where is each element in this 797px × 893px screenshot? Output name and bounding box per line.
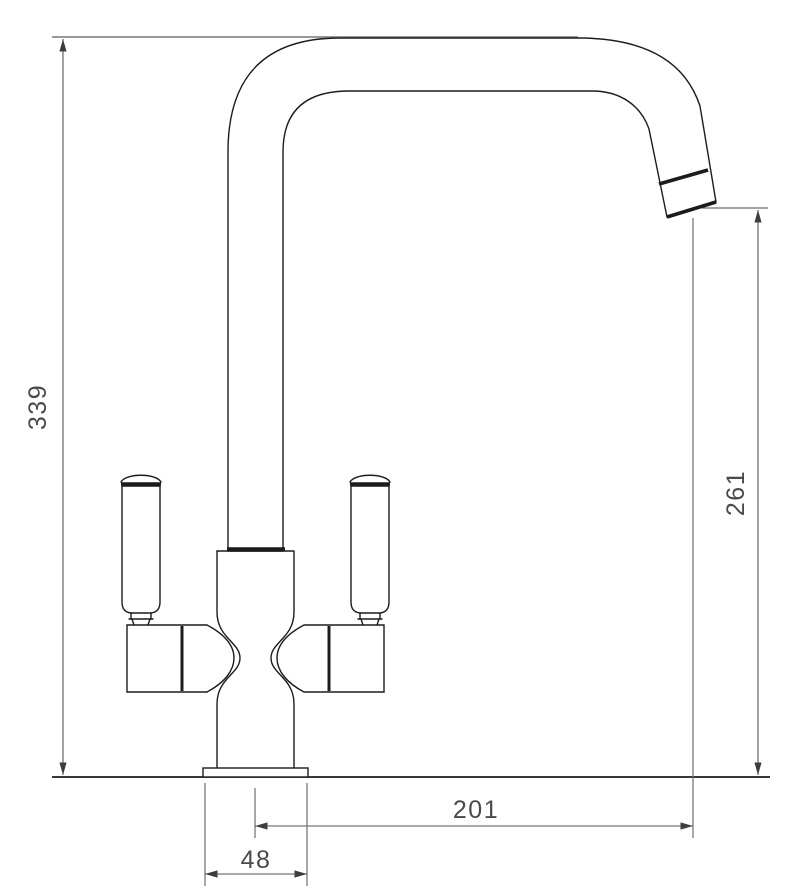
left-valve-assembly xyxy=(121,475,240,768)
spout-tube-outline xyxy=(228,38,716,551)
spout-reach-value: 201 xyxy=(453,796,499,824)
mixer-tap-outline xyxy=(121,38,716,777)
right-valve-assembly xyxy=(271,475,390,768)
mixer-tap-dimension-drawing: 339 261 201 48 xyxy=(0,0,797,893)
outlet-height-value: 261 xyxy=(722,470,750,516)
base-flange xyxy=(203,768,308,777)
overall-height-value: 339 xyxy=(24,384,52,430)
base-width-value: 48 xyxy=(241,846,272,874)
technical-drawing-page: 339 261 201 48 xyxy=(0,0,797,893)
